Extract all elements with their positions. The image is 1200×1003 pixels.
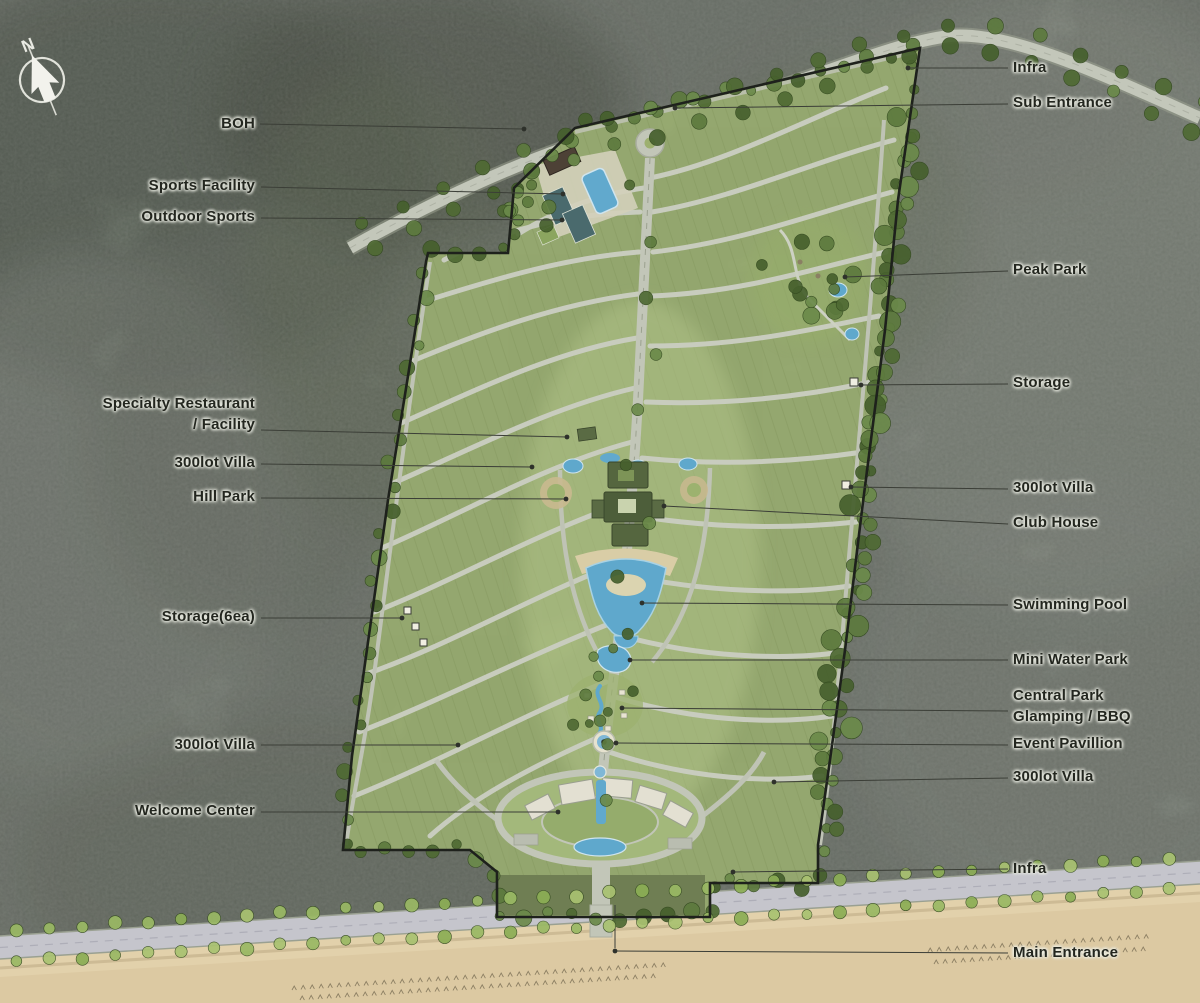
- label-outdoor-sports: Outdoor Sports: [141, 206, 255, 227]
- label-central-park: Central Park Glamping / BBQ: [1013, 685, 1131, 727]
- pond: [563, 459, 583, 473]
- label-villa-right-lower: 300lot Villa: [1013, 766, 1094, 787]
- label-villa-right-upper: 300lot Villa: [1013, 477, 1094, 498]
- label-welcome-center: Welcome Center: [135, 800, 255, 821]
- label-specialty-restaurant: Specialty Restaurant / Facility: [103, 393, 255, 435]
- label-event-pavillion: Event Pavillion: [1013, 733, 1123, 754]
- main-entrance-road: [592, 862, 610, 908]
- specialty-restaurant-building: [577, 427, 596, 441]
- label-boh: BOH: [221, 113, 255, 134]
- pond: [845, 328, 859, 340]
- label-infra-bottom: Infra: [1013, 858, 1047, 879]
- label-villa-left-lower: 300lot Villa: [175, 734, 256, 755]
- label-villa-left-upper: 300lot Villa: [175, 452, 256, 473]
- label-storage: Storage: [1013, 372, 1070, 393]
- label-sub-entrance: Sub Entrance: [1013, 92, 1112, 113]
- label-swimming-pool: Swimming Pool: [1013, 594, 1127, 615]
- label-sports-facility: Sports Facility: [149, 175, 255, 196]
- label-club-house: Club House: [1013, 512, 1098, 533]
- master-plan-canvas: N BOH Sports Facility Outdoo: [0, 0, 1200, 1003]
- label-hill-park: Hill Park: [193, 486, 255, 507]
- label-peak-park: Peak Park: [1013, 259, 1087, 280]
- label-storage-6ea: Storage(6ea): [162, 606, 255, 627]
- label-infra-top: Infra: [1013, 57, 1047, 78]
- site-plan-map: N: [0, 0, 1200, 1003]
- label-mini-water-park: Mini Water Park: [1013, 649, 1128, 670]
- label-main-entrance: Main Entrance: [1013, 942, 1118, 963]
